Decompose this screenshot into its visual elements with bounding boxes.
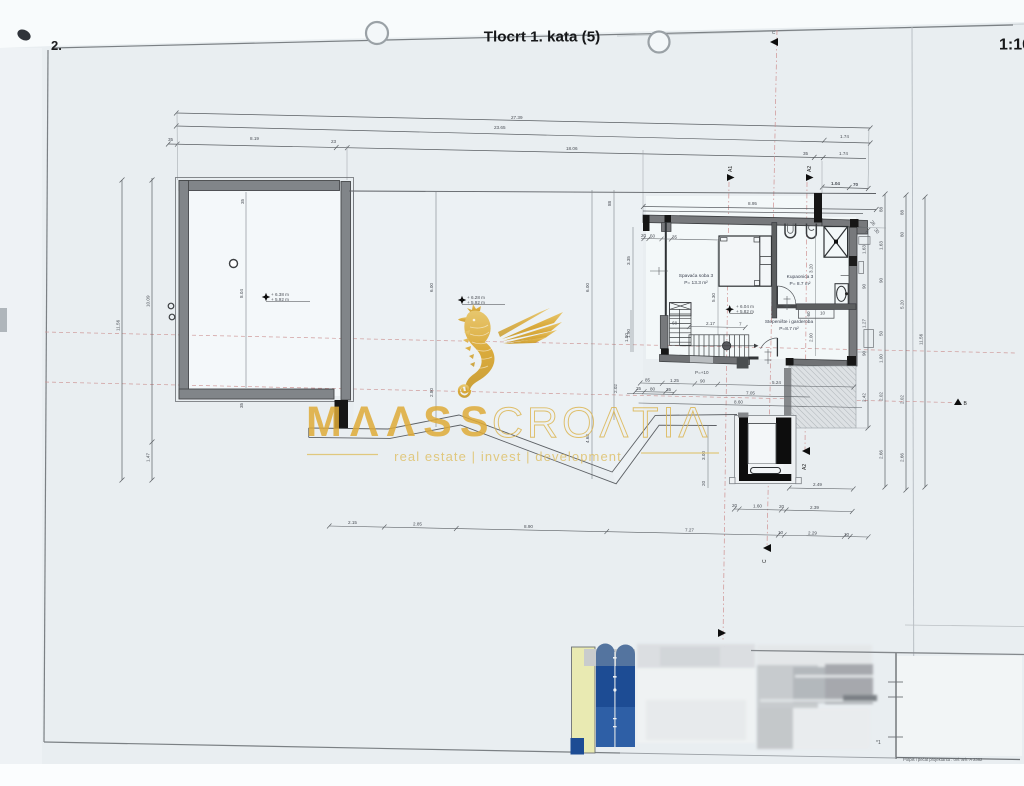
- svg-text:2.02: 2.02: [879, 392, 884, 401]
- svg-text:2.: 2.: [51, 38, 62, 53]
- svg-text:Potpis i pečat projektanta :: Potpis i pečat projektanta : ovl. arh. A…: [903, 757, 983, 762]
- svg-text:Tlocrt 1. kata (5): Tlocrt 1. kata (5): [484, 29, 600, 46]
- svg-text:5.20: 5.20: [900, 300, 905, 309]
- svg-text:20: 20: [701, 480, 706, 486]
- svg-text:20: 20: [732, 503, 738, 508]
- svg-text:7.05: 7.05: [746, 391, 755, 396]
- svg-text:8.95: 8.95: [748, 201, 757, 206]
- svg-text:A2: A2: [802, 464, 808, 470]
- svg-text:3.20: 3.20: [809, 264, 814, 273]
- svg-text:90: 90: [879, 277, 884, 283]
- svg-text:2.42: 2.42: [862, 393, 867, 402]
- svg-text:10.09: 10.09: [146, 295, 151, 307]
- svg-text:7.27: 7.27: [685, 528, 694, 533]
- svg-text:1.25: 1.25: [670, 378, 679, 383]
- svg-text:11.56: 11.56: [919, 333, 924, 345]
- svg-text:*1: *1: [876, 740, 881, 746]
- svg-text:85: 85: [645, 378, 651, 383]
- svg-text:2.85: 2.85: [413, 522, 422, 527]
- svg-text:5.24: 5.24: [772, 380, 781, 385]
- svg-text:35: 35: [239, 402, 244, 408]
- svg-text:2.02: 2.02: [900, 395, 905, 404]
- svg-text:Spavaća soba 3: Spavaća soba 3: [679, 273, 714, 279]
- svg-text:Stepenište i garderoba: Stepenište i garderoba: [765, 319, 814, 325]
- svg-text:1.74: 1.74: [840, 134, 849, 139]
- svg-text:1.27: 1.27: [862, 319, 867, 328]
- svg-text:3.00: 3.00: [701, 451, 706, 460]
- svg-text:P=+10: P=+10: [695, 370, 709, 375]
- svg-text:90: 90: [862, 283, 867, 289]
- svg-text:P= 8.7 m²: P= 8.7 m²: [790, 281, 811, 287]
- svg-text:11.56: 11.56: [116, 319, 121, 331]
- svg-text:1.60: 1.60: [753, 504, 762, 509]
- svg-text:5.30: 5.30: [711, 293, 716, 302]
- svg-text:P= 13.3 m²: P= 13.3 m²: [684, 280, 708, 286]
- svg-text:23.65: 23.65: [494, 125, 506, 130]
- svg-text:2.29: 2.29: [808, 531, 817, 536]
- svg-text:C: C: [762, 559, 768, 563]
- svg-text:90: 90: [862, 350, 867, 356]
- svg-text:2.00: 2.00: [809, 333, 814, 342]
- svg-text:23: 23: [331, 139, 337, 144]
- svg-text:1.74: 1.74: [839, 151, 848, 156]
- svg-text:60: 60: [806, 311, 811, 317]
- svg-text:6.00: 6.00: [429, 283, 434, 292]
- svg-text:2.66: 2.66: [879, 450, 884, 459]
- svg-text:8.19: 8.19: [250, 136, 259, 141]
- svg-text:1.00: 1.00: [879, 354, 884, 363]
- svg-text:2.17: 2.17: [706, 321, 715, 326]
- svg-text:88: 88: [607, 200, 612, 206]
- svg-text:90: 90: [700, 379, 706, 384]
- svg-text:2.66: 2.66: [900, 453, 905, 462]
- svg-text:88: 88: [900, 209, 905, 215]
- svg-text:2.39: 2.39: [810, 505, 819, 510]
- svg-text:+ 5.92 m: + 5.92 m: [467, 300, 485, 305]
- svg-text:50: 50: [650, 234, 656, 239]
- svg-text:10: 10: [820, 311, 826, 316]
- svg-text:35: 35: [672, 235, 678, 240]
- svg-text:27.39: 27.39: [511, 115, 523, 120]
- svg-text:A1: A1: [728, 166, 734, 172]
- svg-text:3.35: 3.35: [626, 256, 631, 265]
- svg-text:1.47: 1.47: [146, 453, 151, 462]
- svg-text:P=8.7 m²: P=8.7 m²: [779, 326, 799, 332]
- svg-text:8.04: 8.04: [239, 289, 244, 298]
- svg-text:10: 10: [844, 532, 850, 537]
- svg-text:2.80: 2.80: [429, 388, 434, 397]
- svg-text:A2: A2: [807, 166, 813, 172]
- svg-text:35: 35: [240, 198, 245, 204]
- svg-text:real estate | invest | develop: real estate | invest | development: [394, 449, 622, 464]
- svg-text:6.00: 6.00: [585, 283, 590, 292]
- svg-text:7: 7: [739, 322, 742, 327]
- svg-text:35: 35: [666, 387, 672, 392]
- svg-text:Kupaonica 3: Kupaonica 3: [787, 274, 814, 280]
- svg-text:88: 88: [879, 206, 884, 212]
- svg-text:80: 80: [650, 387, 656, 392]
- svg-text:1.63: 1.63: [862, 245, 867, 254]
- svg-text:20: 20: [779, 504, 785, 509]
- svg-text:35: 35: [636, 386, 642, 391]
- svg-text:+ 5.82 m: + 5.82 m: [736, 309, 754, 314]
- svg-text:20: 20: [641, 233, 647, 238]
- svg-text:8.60: 8.60: [734, 400, 743, 405]
- svg-text:68: 68: [672, 321, 678, 326]
- svg-text:35: 35: [168, 137, 174, 142]
- svg-text:1:100: 1:100: [999, 37, 1024, 54]
- svg-text:2.49: 2.49: [813, 482, 822, 487]
- svg-text:1.04: 1.04: [831, 181, 840, 186]
- svg-text:CROΛTIΛ: CROΛTIΛ: [492, 399, 711, 447]
- svg-text:8.90: 8.90: [524, 524, 533, 529]
- svg-text:50: 50: [879, 330, 884, 336]
- svg-text:70: 70: [853, 182, 859, 187]
- svg-text:18.06: 18.06: [566, 146, 578, 151]
- svg-text:MΛΛSS: MΛΛSS: [306, 398, 497, 446]
- svg-text:10: 10: [778, 530, 784, 535]
- svg-text:1.63: 1.63: [879, 241, 884, 250]
- svg-text:+ 5.92 m: + 5.92 m: [271, 297, 289, 302]
- svg-text:2.02: 2.02: [613, 384, 618, 393]
- svg-text:80: 80: [900, 231, 905, 237]
- svg-text:2.15: 2.15: [348, 520, 357, 525]
- svg-text:1.90: 1.90: [626, 329, 631, 338]
- svg-text:35: 35: [803, 151, 809, 156]
